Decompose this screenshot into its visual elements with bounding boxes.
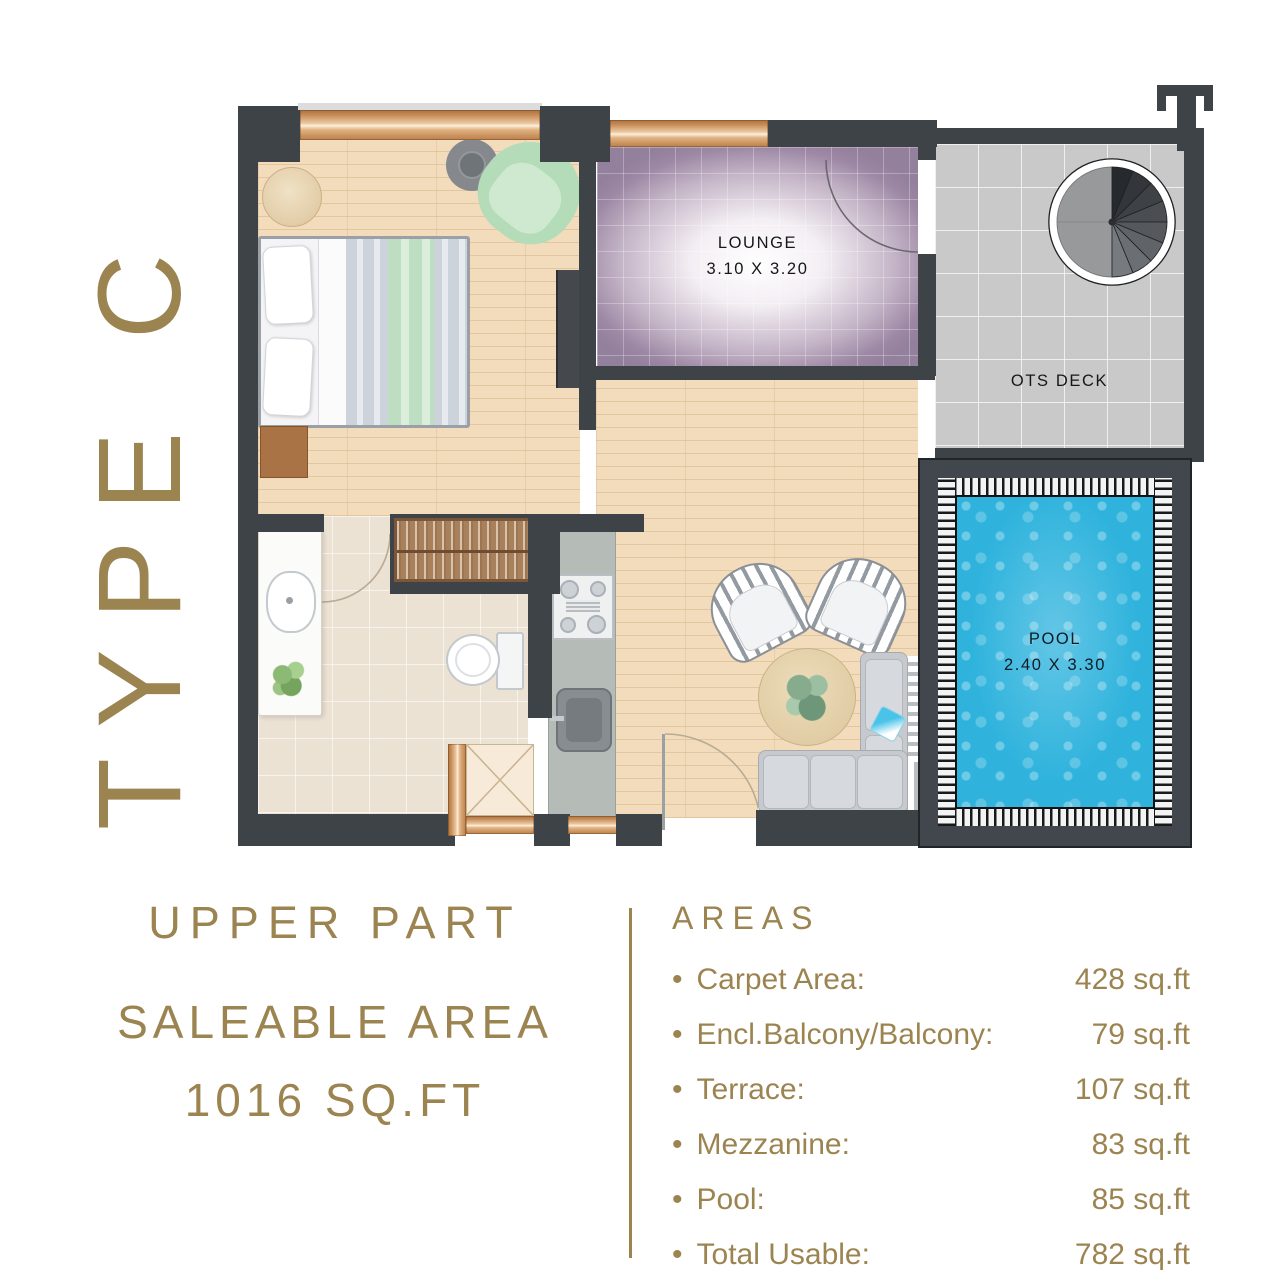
saleable-area-value: 1016 SQ.FT (55, 1073, 615, 1127)
table-plant (775, 665, 839, 729)
pool-dimensions: 2.40 X 3.30 (1004, 652, 1106, 678)
pool-deck: POOL 2.40 X 3.30 (938, 478, 1172, 826)
bed-blanket (346, 239, 467, 425)
area-value: 107 sq.ft (1075, 1073, 1190, 1107)
footer-divider (629, 908, 632, 1258)
area-label: Total Usable: (672, 1238, 870, 1272)
wall-segment (918, 144, 936, 160)
wall-segment (238, 106, 258, 846)
area-row: Pool: 85 sq.ft (672, 1183, 1190, 1217)
floor-plan: POOL 2.40 X 3.30 LOUNGE 3.10 X 3.20 OTS … (228, 68, 1212, 852)
area-row: Encl.Balcony/Balcony: 79 sq.ft (672, 1018, 1190, 1052)
wardrobe (394, 518, 534, 582)
bathroom-plant (267, 657, 311, 701)
area-label: Mezzanine: (672, 1128, 850, 1162)
door-threshold (568, 816, 618, 834)
wall-segment (238, 106, 300, 162)
stove-grill (566, 600, 600, 612)
wall-segment (579, 118, 596, 430)
area-value: 85 sq.ft (1092, 1183, 1190, 1217)
wall-segment (928, 128, 1192, 144)
door-threshold (466, 816, 534, 834)
ots-deck-label: OTS DECK (935, 368, 1184, 394)
bedroom-window (300, 110, 540, 140)
bed-sheet (318, 239, 347, 425)
pool-label: POOL (1029, 626, 1081, 652)
area-value: 782 sq.ft (1075, 1238, 1190, 1272)
area-row: Carpet Area: 428 sq.ft (672, 963, 1190, 997)
wall-segment (1184, 128, 1204, 462)
vanity-sink (258, 528, 322, 716)
lounge-window (610, 120, 768, 147)
area-label: Encl.Balcony/Balcony: (672, 1018, 993, 1052)
wall-segment (258, 514, 324, 532)
burner (587, 615, 606, 634)
toilet (446, 634, 500, 686)
kitchen-sink (556, 688, 612, 752)
area-value: 79 sq.ft (1092, 1018, 1190, 1052)
wall-segment (528, 514, 644, 532)
washbasin (266, 571, 316, 633)
burner (590, 581, 606, 597)
bed (258, 236, 470, 428)
area-value: 428 sq.ft (1075, 963, 1190, 997)
saleable-area-label: SALEABLE AREA (55, 995, 615, 1049)
duct-shaft (466, 744, 534, 816)
area-row: Mezzanine: 83 sq.ft (672, 1128, 1190, 1162)
ots-deck-floor (935, 144, 1184, 450)
area-label: Terrace: (672, 1073, 805, 1107)
bed-pillow (262, 337, 314, 417)
balcony-edge (298, 103, 542, 110)
burner (560, 580, 579, 599)
pool: POOL 2.40 X 3.30 (955, 495, 1155, 809)
sofa (758, 750, 908, 814)
burner (560, 617, 576, 633)
wall-segment (918, 254, 936, 376)
nightstand (260, 426, 308, 478)
areas-heading: AREAS (672, 900, 1190, 937)
wall-segment (756, 810, 918, 846)
plan-type-label: TYPE C (72, 224, 208, 830)
area-value: 83 sq.ft (1092, 1128, 1190, 1162)
part-label: UPPER PART (55, 897, 615, 949)
wall-segment (238, 814, 455, 846)
wall-column (1177, 91, 1196, 151)
bed-pillow (262, 245, 314, 325)
stove (552, 574, 614, 640)
area-row: Total Usable: 782 sq.ft (672, 1238, 1190, 1272)
wall-segment (534, 814, 570, 846)
area-row: Terrace: 107 sq.ft (672, 1073, 1190, 1107)
coffee-table (758, 648, 856, 746)
lounge-label: LOUNGE 3.10 X 3.20 (597, 230, 918, 282)
wall-column (1157, 85, 1166, 111)
wall-segment (540, 106, 610, 162)
page: TYPE C (0, 0, 1280, 1280)
entry-door-leaf (662, 734, 665, 830)
wall-segment (528, 514, 552, 718)
plan-summary: UPPER PART SALEABLE AREA 1016 SQ.FT (55, 897, 615, 1127)
toilet-tank (496, 632, 524, 690)
wall-segment (583, 366, 935, 380)
wall-column (1204, 85, 1213, 111)
area-label: Carpet Area: (672, 963, 865, 997)
door-threshold (448, 744, 466, 836)
wall-segment (768, 120, 937, 147)
wall-segment (616, 814, 662, 846)
area-label: Pool: (672, 1183, 765, 1217)
areas-table: AREAS Carpet Area: 428 sq.ft Encl.Balcon… (672, 900, 1190, 1280)
bedside-table (262, 167, 322, 227)
